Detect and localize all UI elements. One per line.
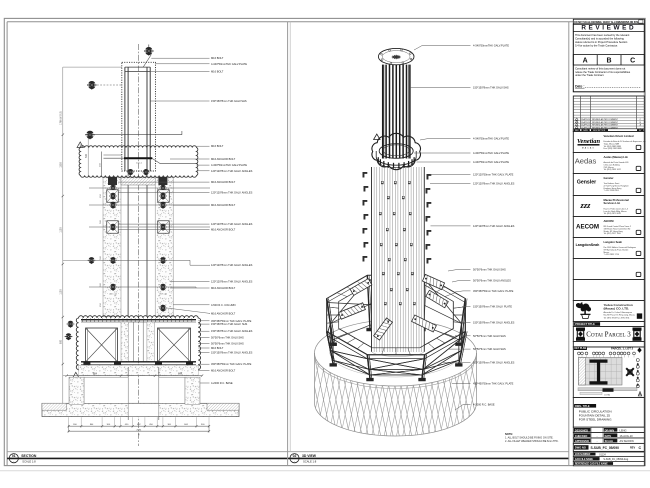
svg-text:Langdon Seah: Langdon Seah [604, 240, 623, 244]
svg-text:Consultant review of this: Consultant review of this document does … [575, 66, 625, 70]
svg-text:No.258 Praca Kin Heng Long, Ma: No.258 Praca Kin Heng Long, Macau [604, 313, 635, 316]
svg-text:REVIEWED: REVIEWED [581, 24, 636, 31]
svg-text:C: C [639, 446, 642, 450]
svg-text:3D VIEW: 3D VIEW [302, 454, 317, 458]
svg-text:4-340*50mmTHK GALV.PLATE: 4-340*50mmTHK GALV.PLATE [473, 137, 509, 141]
svg-text:SCALE 1:8: SCALE 1:8 [303, 459, 317, 463]
svg-text:-: - [13, 459, 14, 463]
svg-text:S-SUB_FC_05090.dwg: S-SUB_FC_05090.dwg [603, 458, 629, 461]
svg-text:1350: 1350 [60, 162, 63, 168]
svg-text:150*150*8mm THK GALV. ANGLES: 150*150*8mm THK GALV. ANGLES [211, 351, 253, 355]
svg-text:AS SHOWN: AS SHOWN [620, 439, 634, 443]
svg-text:status referred to in Pro: status referred to in Project Procedure … [575, 40, 628, 44]
svg-text:4-300*50mmTHK GALV.PLATE: 4-300*50mmTHK GALV.PLATE [211, 163, 247, 167]
svg-text:50*50*6mm THK GALV.SHS: 50*50*6mm THK GALV.SHS [211, 335, 244, 339]
svg-text:PARCEL 1, LOT 2: PARCEL 1, LOT 2 [611, 346, 634, 350]
svg-text:M16 BOLT: M16 BOLT [211, 144, 224, 148]
svg-text:450*450*50mm THK GALV. PLATE: 450*450*50mm THK GALV. PLATE [473, 289, 514, 293]
svg-text:M16 BOLT: M16 BOLT [211, 56, 224, 60]
svg-text:T +853 2833 1710: T +853 2833 1710 [604, 254, 619, 256]
svg-text:DRAWN: DRAWN [605, 429, 615, 432]
svg-text:PROJECT TITLE: PROJECT TITLE [575, 323, 595, 326]
svg-text:Tel: (853) 2871 8020: Tel: (853) 2871 8020 [604, 213, 621, 215]
svg-text:16-AUG-10: 16-AUG-10 [620, 434, 634, 438]
svg-text:1100: 1100 [60, 227, 63, 233]
svg-text:T +852 2598 8101: T +852 2598 8101 [604, 190, 619, 192]
svg-text:REFERENCE CAD FILE NAME: REFERENCE CAD FILE NAME [575, 463, 608, 466]
svg-text:M16 ANCHOR BOLT: M16 ANCHOR BOLT [211, 286, 236, 290]
svg-text:M16 ANCHOR BOLT: M16 ANCHOR BOLT [211, 228, 236, 232]
svg-text:50*50*6mm THK GALV.SHS: 50*50*6mm THK GALV.SHS [473, 268, 506, 272]
svg-text:AECOM: AECOM [604, 219, 615, 223]
svg-text:DWG. TITLE: DWG. TITLE [575, 405, 590, 408]
svg-text:150*150*8mm THK GALV. ANGLES: 150*150*8mm THK GALV. ANGLES [211, 329, 253, 333]
svg-text:2. ALL FILLET WELDED SHOULD BE: 2. ALL FILLET WELDED SHOULD BE 6mm THK. [505, 440, 559, 443]
svg-text:Aedas: Aedas [575, 156, 597, 165]
svg-text:FOR STEEL DRAWING: FOR STEEL DRAWING [579, 417, 612, 421]
svg-text:120*120*8mm THK GALV. ANGLES: 120*120*8mm THK GALV. ANGLES [473, 224, 515, 228]
svg-text:4-500 R.C. COLUMN: 4-500 R.C. COLUMN [211, 303, 236, 307]
svg-text:APPROVED: APPROVED [575, 440, 589, 443]
svg-text:M16 ANCHOR BOLT: M16 ANCHOR BOLT [211, 368, 236, 372]
svg-text:-: - [294, 459, 295, 463]
svg-text:B: B [606, 58, 611, 65]
svg-text:Gensler: Gensler [577, 180, 596, 186]
svg-text:150*150*8mm THK GALV.SHS: 150*150*8mm THK GALV.SHS [211, 99, 247, 103]
svg-text:M16 ANCHOR BOLT: M16 ANCHOR BOLT [211, 180, 236, 184]
svg-text:120*120*8mm THK GALV. ANGLES: 120*120*8mm THK GALV. ANGLES [211, 222, 253, 226]
svg-text:Tel: (853) 2833 1022: Tel: (853) 2833 1022 [604, 169, 621, 171]
svg-text:50*50*6mm THK GALV.ANGLES: 50*50*6mm THK GALV.ANGLES [473, 278, 511, 282]
svg-text:150*150*8mm THK GALV. PLATE: 150*150*8mm THK GALV. PLATE [473, 305, 512, 309]
svg-text:Fax: (853) 2882 8889: Fax: (853) 2882 8889 [604, 148, 622, 150]
svg-text:50*50*6mm THK GALV.SHS: 50*50*6mm THK GALV.SHS [211, 341, 244, 345]
svg-text:M16 BOLT: M16 BOLT [211, 346, 224, 350]
svg-text:M16 BOLT: M16 BOLT [211, 69, 224, 73]
svg-text:864: 864 [93, 372, 98, 375]
svg-text:CAD FILE NAME: CAD FILE NAME [575, 458, 593, 461]
svg-text:zzz: zzz [580, 200, 592, 210]
svg-text:JOB NUMBER: JOB NUMBER [575, 454, 591, 456]
svg-text:DATE: DATE [605, 435, 612, 438]
svg-text:KEY PLAN: KEY PLAN [575, 347, 587, 350]
svg-text:DWG NO: DWG NO [575, 446, 586, 450]
svg-text:Gensler: Gensler [604, 176, 614, 180]
svg-text:4-2000 R.C. BASE: 4-2000 R.C. BASE [473, 403, 495, 407]
svg-text:150*150*8mm THK GALV. SHS: 150*150*8mm THK GALV. SHS [211, 322, 248, 326]
svg-text:-: - [597, 440, 598, 443]
svg-text:This document has been rev: This document has been revised by the re… [575, 33, 630, 37]
svg-text:A: A [583, 58, 588, 65]
svg-text:REVISED AS PER COMMENT: REVISED AS PER COMMENT [592, 121, 619, 124]
svg-text:50*50*6mm THK GALV.SHS: 50*50*6mm THK GALV.SHS [473, 347, 506, 351]
svg-text:500: 500 [85, 153, 88, 158]
svg-text:(Macau) CO. LTD.: (Macau) CO. LTD. [604, 306, 630, 310]
svg-text:REV: REV [630, 447, 635, 450]
svg-text:Tel: (852) 2317 7000: Tel: (852) 2317 7000 [604, 233, 621, 235]
svg-text:120*120*50mm THK GALV. PLATE: 120*120*50mm THK GALV. PLATE [473, 172, 514, 176]
svg-text:Venetian Orient Limited: Venetian Orient Limited [604, 134, 634, 138]
svg-text:02: 02 [293, 454, 297, 458]
svg-text:(min up): (min up) [159, 294, 167, 296]
svg-text:4-2000 R.C. BASE: 4-2000 R.C. BASE [211, 381, 233, 385]
svg-text:1100: 1100 [60, 289, 63, 295]
svg-text:COTAI: COTAI [604, 393, 610, 396]
svg-text:01124: 01124 [599, 453, 606, 456]
svg-text:DESIGNED: DESIGNED [575, 429, 588, 432]
svg-text:150*150*8mm THK GALV. ANGLES: 150*150*8mm THK GALV. ANGLES [473, 321, 515, 325]
svg-text:LangdonSeah: LangdonSeah [576, 243, 600, 247]
svg-text:150*150*8mm THK GALV. ANGLES: 150*150*8mm THK GALV. ANGLES [473, 360, 515, 364]
svg-text:120*120*8mm THK GALV. ANGLES: 120*120*8mm THK GALV. ANGLES [473, 182, 515, 186]
svg-text:S-SUB_FC_05/090: S-SUB_FC_05/090 [591, 446, 620, 450]
svg-text:50*50*6mm THK GALV.SHS: 50*50*6mm THK GALV.SHS [473, 334, 506, 338]
svg-text:15-APR-10: 15-APR-10 [581, 121, 590, 124]
svg-text:4-340*50mmTHK GALV.PLATE: 4-340*50mmTHK GALV.PLATE [473, 44, 509, 48]
svg-text:CHECKED: CHECKED [575, 435, 588, 438]
svg-text:under the Trade Contract.: under the Trade Contract. [575, 73, 604, 77]
svg-text:800: 800 [60, 339, 63, 344]
svg-text:Aedas (Macau) Ltd.: Aedas (Macau) Ltd. [604, 155, 629, 159]
svg-text:120*120*8mm THK GALV. ANGLES: 120*120*8mm THK GALV. ANGLES [211, 190, 253, 194]
svg-text:-: - [597, 435, 598, 438]
svg-text:1786 (V.O.S): 1786 (V.O.S) [60, 111, 63, 125]
svg-text:450*450*50mm THK GALV. PLATE: 450*450*50mm THK GALV. PLATE [211, 362, 252, 366]
svg-text:COTAI PARCEL 3: COTAI PARCEL 3 [586, 331, 631, 339]
svg-text:REVISED AS PER COMMENT: REVISED AS PER COMMENT [592, 118, 619, 121]
svg-text:SECTION: SECTION [21, 454, 37, 458]
svg-text:M16 ANCHOR BOLT: M16 ANCHOR BOLT [211, 203, 236, 207]
svg-text:120*120*8mm THK GALV. ANGLES: 120*120*8mm THK GALV. ANGLES [211, 280, 253, 284]
svg-text:150*150*8mm THK GALV.SHS: 150*150*8mm THK GALV.SHS [473, 85, 509, 89]
svg-text:450*450*50mm THK GALV. PLATE: 450*450*50mm THK GALV. PLATE [473, 381, 514, 385]
svg-text:01: 01 [12, 454, 16, 458]
svg-text:Venetian: Venetian [577, 138, 601, 145]
svg-text:15-APR-10: 15-APR-10 [581, 124, 590, 127]
svg-text:4-300*50mmTHK GALV.PLATE: 4-300*50mmTHK GALV.PLATE [473, 151, 509, 155]
svg-text:4-340*50mmTHK GALV.PLATE: 4-340*50mmTHK GALV.PLATE [211, 62, 247, 66]
svg-text:2594: 2594 [136, 429, 142, 431]
svg-text:C: C [630, 58, 635, 65]
svg-text:REVISED AS PER COMMENT: REVISED AS PER COMMENT [592, 124, 619, 127]
svg-text:4-340*50mmTHK GALV.PLATE: 4-340*50mmTHK GALV.PLATE [473, 160, 509, 164]
svg-text:864: 864 [178, 372, 183, 375]
svg-text:Services Ltd.: Services Ltd. [604, 201, 621, 205]
svg-text:M16 ANCHOR BOLT: M16 ANCHOR BOLT [211, 157, 236, 161]
svg-text:SCALE 1:8: SCALE 1:8 [22, 459, 36, 463]
svg-text:1.0-1.1: 1.0-1.1 [136, 163, 143, 165]
svg-text:Date :: Date : [575, 85, 584, 89]
svg-text:120*120*8mm THK GALV. ANGLES: 120*120*8mm THK GALV. ANGLES [211, 169, 253, 173]
svg-text:AECOM: AECOM [576, 224, 599, 231]
svg-text:NOTE:: NOTE: [505, 432, 513, 436]
svg-text:relieve the Trade Contracto: relieve the Trade Contractor of its resp… [575, 70, 631, 74]
svg-text:5.4 for action by the Tra: 5.4 for action by the Trade Contractor. [575, 43, 618, 47]
svg-text:M16 ANCHOR BOLT: M16 ANCHOR BOLT [211, 311, 236, 315]
svg-text:Tel: 2870 3913 Fax: 2870 391: Tel: 2870 3913 Fax: 2870 3911 [604, 318, 630, 320]
svg-text:120*120*8mm THK GALV. ANGLES: 120*120*8mm THK GALV. ANGLES [211, 263, 253, 267]
svg-text:(min up): (min up) [109, 294, 117, 296]
svg-text:LENG: LENG [620, 428, 627, 432]
svg-text:SCALE: SCALE [605, 440, 614, 443]
svg-text:Consultant(s) and is accord: Consultant(s) and is accorded the follow… [575, 36, 624, 40]
svg-text:15-APR-10: 15-APR-10 [581, 118, 590, 121]
svg-text:MACAO: MACAO [582, 147, 595, 150]
